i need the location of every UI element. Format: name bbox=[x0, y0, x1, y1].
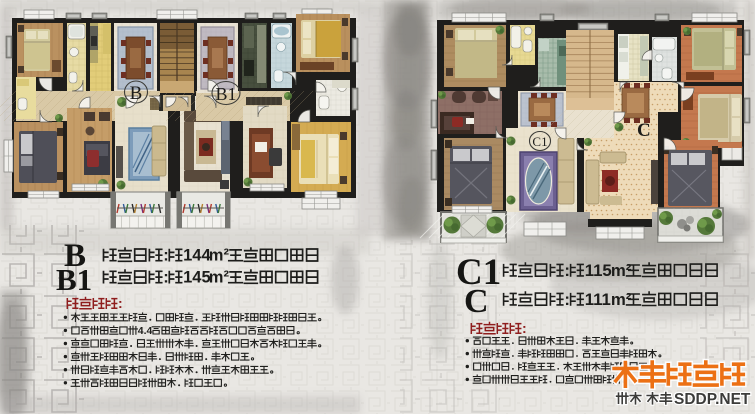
svg-text:SDDP.NET: SDDP.NET bbox=[674, 391, 751, 408]
svg-text:B: B bbox=[130, 83, 143, 104]
svg-text::: : bbox=[564, 290, 570, 309]
svg-text::: : bbox=[163, 247, 169, 265]
svg-text::: : bbox=[118, 295, 123, 311]
svg-text:B1: B1 bbox=[56, 262, 92, 297]
svg-text:m²: m² bbox=[611, 261, 632, 280]
svg-text:144: 144 bbox=[183, 247, 211, 265]
svg-text:m²: m² bbox=[611, 290, 632, 309]
svg-text::: : bbox=[564, 261, 570, 280]
svg-text:145: 145 bbox=[183, 269, 211, 287]
svg-text::: : bbox=[163, 269, 169, 287]
svg-text:4.4: 4.4 bbox=[138, 326, 153, 337]
svg-text:C: C bbox=[464, 283, 489, 320]
svg-text:C1: C1 bbox=[532, 134, 547, 149]
svg-text:C: C bbox=[637, 120, 651, 141]
svg-text:111: 111 bbox=[585, 290, 611, 309]
svg-text::: : bbox=[522, 320, 527, 336]
svg-text:115: 115 bbox=[585, 261, 612, 280]
svg-text:B1: B1 bbox=[215, 84, 236, 104]
